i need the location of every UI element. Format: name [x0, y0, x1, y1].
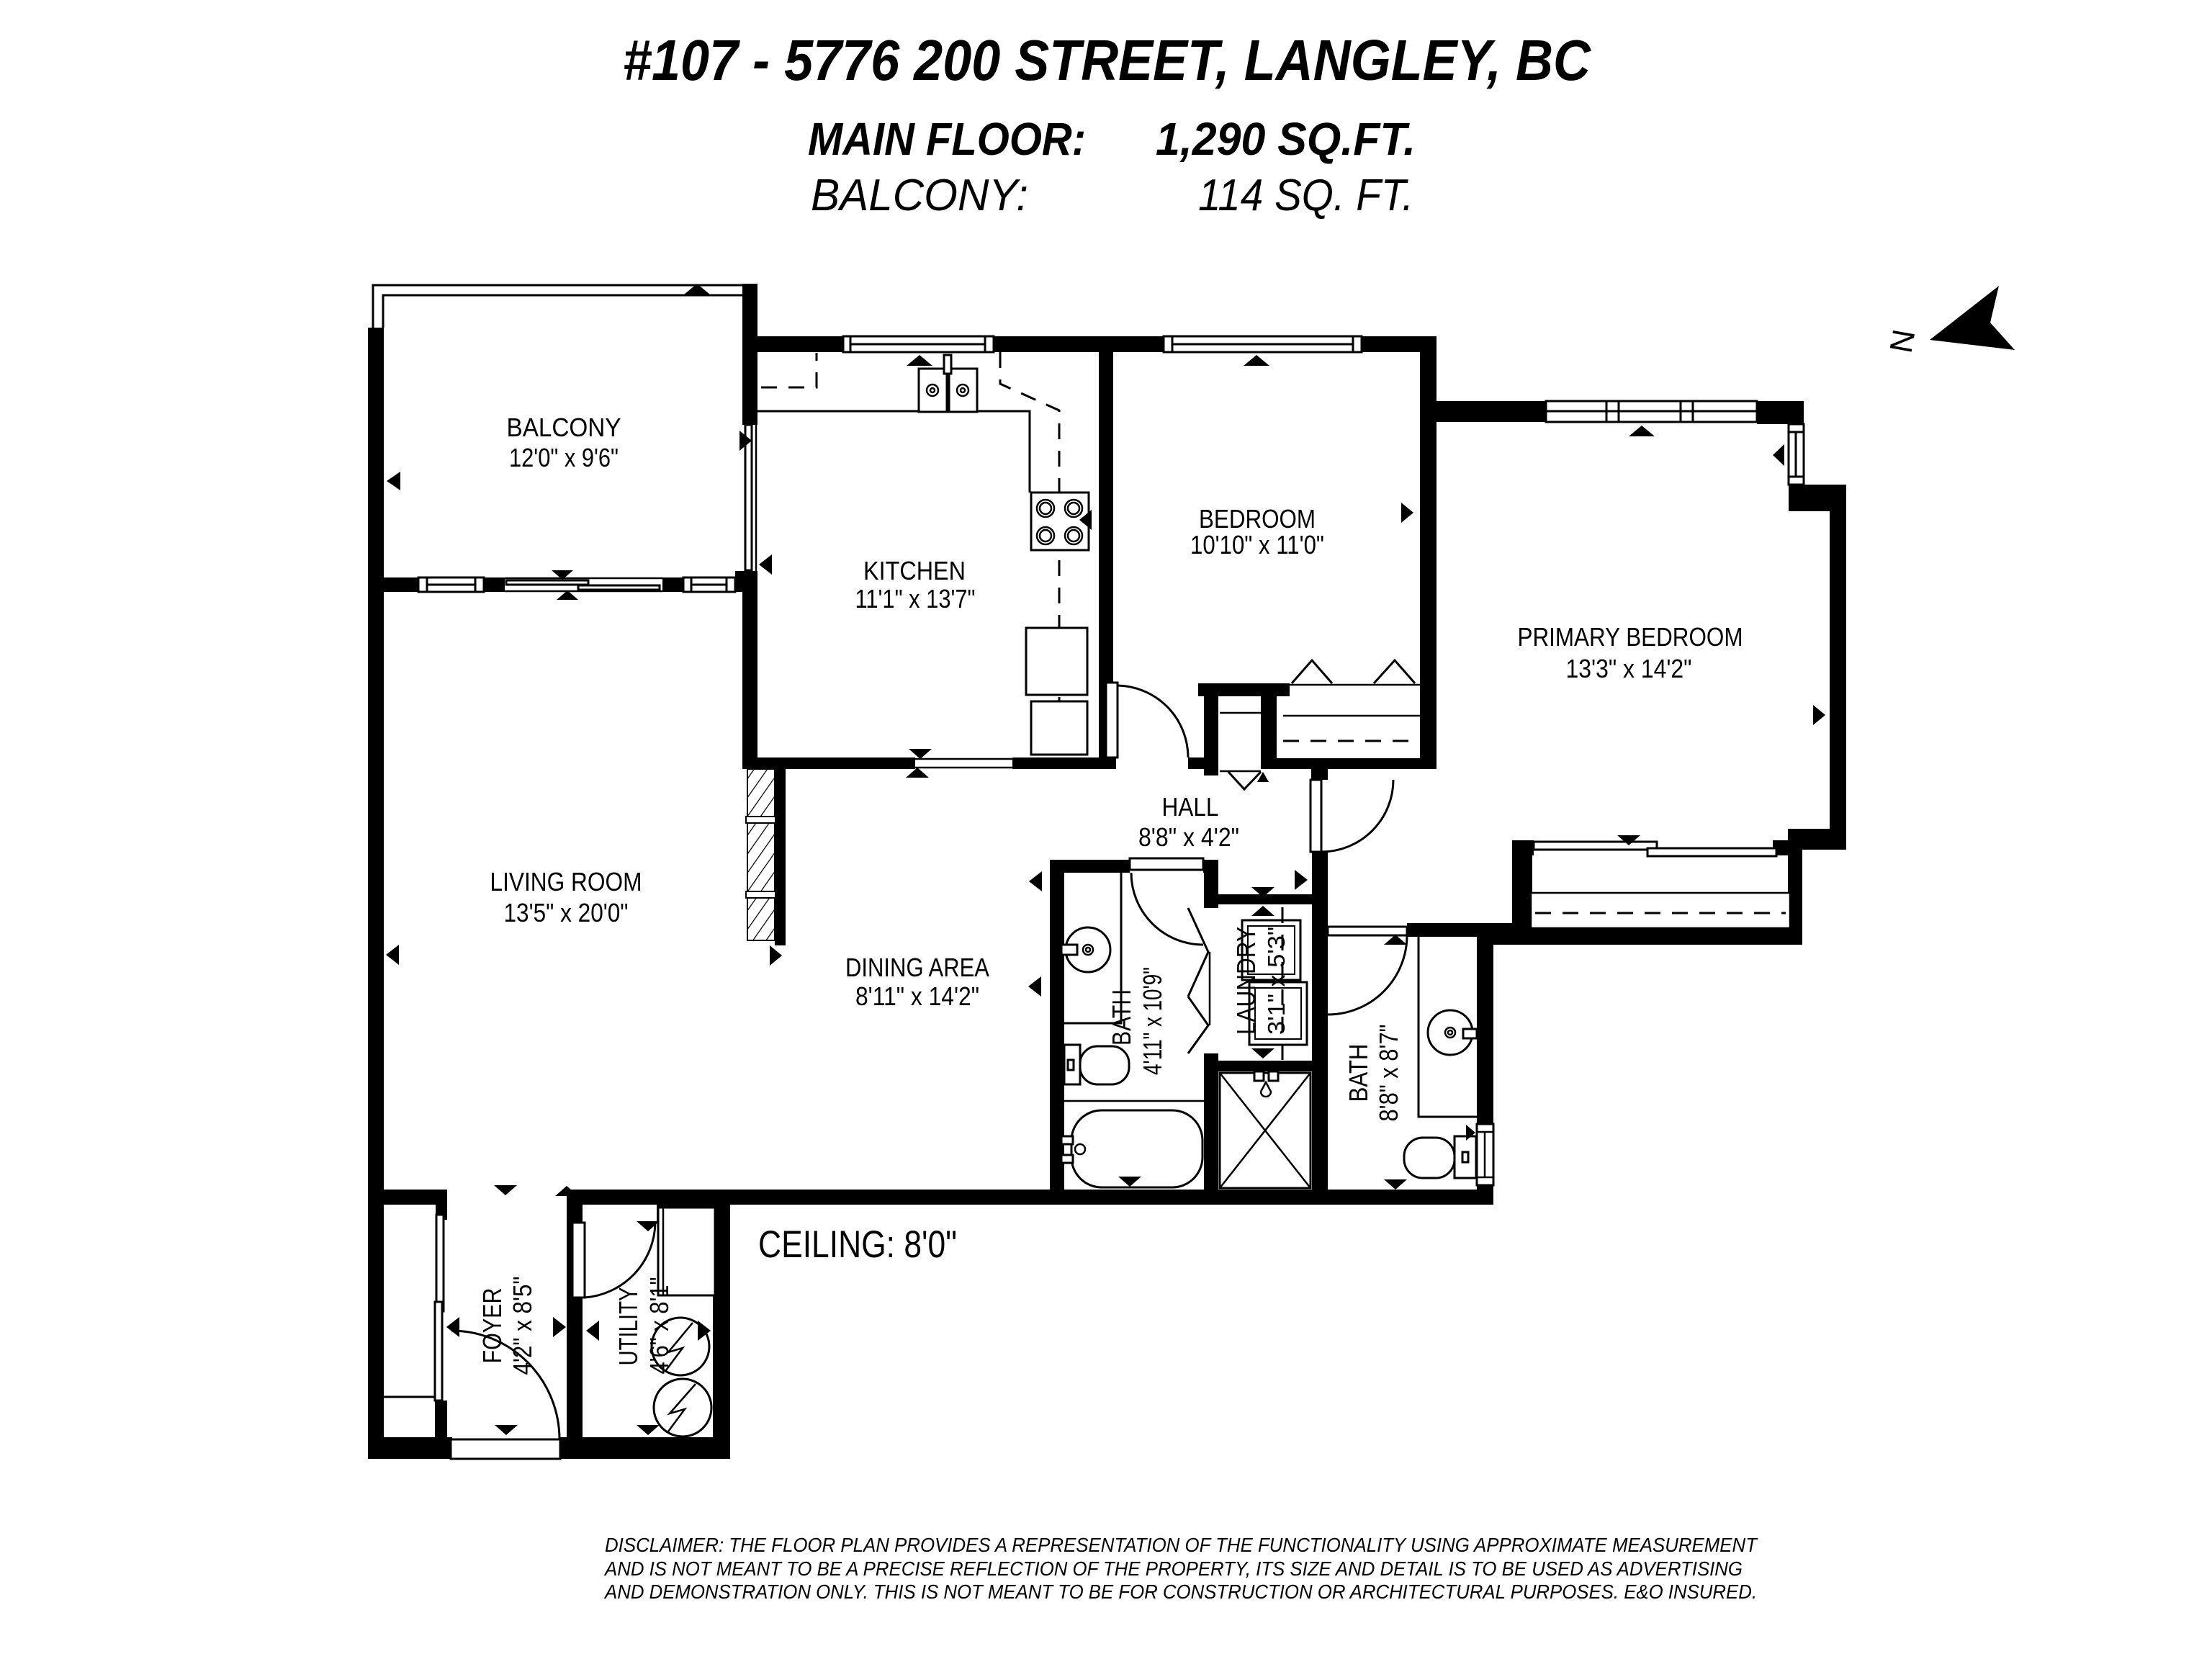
svg-text:HALL: HALL	[1162, 792, 1219, 822]
svg-text:BATH: BATH	[1107, 989, 1136, 1046]
svg-text:DISCLAIMER: THE FLOOR PLAN PRO: DISCLAIMER: THE FLOOR PLAN PROVIDES A RE…	[605, 1534, 1758, 1556]
svg-text:LAUNDRY: LAUNDRY	[1231, 927, 1261, 1035]
svg-text:FOYER: FOYER	[477, 1288, 507, 1364]
svg-text:13'5" x 20'0": 13'5" x 20'0"	[504, 898, 629, 927]
svg-text:PRIMARY BEDROOM: PRIMARY BEDROOM	[1518, 622, 1743, 652]
svg-text:13'3" x 14'2": 13'3" x 14'2"	[1566, 654, 1692, 683]
svg-text:12'0" x 9'6": 12'0" x 9'6"	[509, 443, 619, 472]
svg-text:8'8" x 8'7": 8'8" x 8'7"	[1374, 1025, 1403, 1122]
svg-text:10'10" x 11'0": 10'10" x 11'0"	[1190, 530, 1324, 559]
svg-text:LIVING ROOM: LIVING ROOM	[490, 867, 642, 896]
svg-text:BATH: BATH	[1344, 1044, 1373, 1102]
svg-text:BALCONY:: BALCONY:	[811, 171, 1028, 220]
svg-text:4'11" x 10'9": 4'11" x 10'9"	[1138, 967, 1167, 1075]
svg-text:114 SQ. FT.: 114 SQ. FT.	[1198, 171, 1413, 220]
svg-text:BEDROOM: BEDROOM	[1199, 504, 1316, 534]
svg-text:#107 - 5776 200 STREET, LANGLE: #107 - 5776 200 STREET, LANGLEY, BC	[623, 28, 1591, 92]
svg-text:AND DEMONSTRATION ONLY. THIS I: AND DEMONSTRATION ONLY. THIS IS NOT MEAN…	[603, 1581, 1757, 1603]
svg-text:4'2" x 8'5": 4'2" x 8'5"	[508, 1277, 537, 1375]
svg-text:UTILITY: UTILITY	[613, 1287, 643, 1366]
svg-text:DINING AREA: DINING AREA	[845, 953, 989, 982]
svg-text:8'8" x 4'2": 8'8" x 4'2"	[1138, 822, 1239, 852]
svg-text:8'11" x 14'2": 8'11" x 14'2"	[855, 981, 979, 1011]
svg-text:KITCHEN: KITCHEN	[863, 556, 966, 585]
svg-text:11'1" x 13'7": 11'1" x 13'7"	[855, 584, 976, 613]
svg-text:BALCONY: BALCONY	[507, 413, 621, 442]
svg-text:CEILING: 8'0": CEILING: 8'0"	[758, 1223, 957, 1266]
svg-text:4'6" x 8'1": 4'6" x 8'1"	[644, 1277, 674, 1375]
svg-text:AND IS NOT MEANT TO BE A PRECI: AND IS NOT MEANT TO BE A PRECISE REFLECT…	[603, 1557, 1743, 1580]
svg-text:MAIN FLOOR:: MAIN FLOOR:	[808, 113, 1086, 165]
svg-text:3'1" x 5'3": 3'1" x 5'3"	[1263, 927, 1290, 1035]
svg-text:1,290 SQ.FT.: 1,290 SQ.FT.	[1156, 113, 1416, 165]
